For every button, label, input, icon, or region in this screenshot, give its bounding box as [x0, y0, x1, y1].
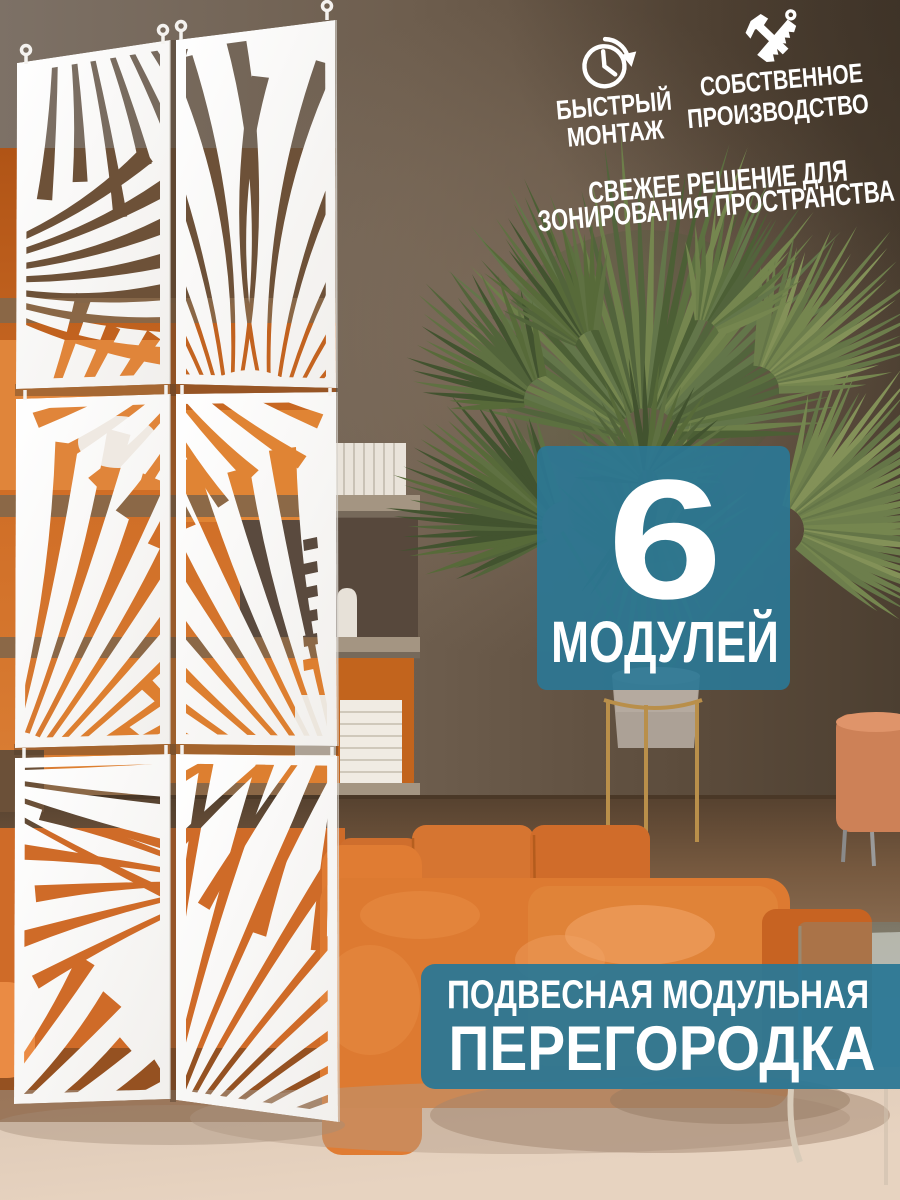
svg-text:ПОДВЕСНАЯ МОДУЛЬНАЯ: ПОДВЕСНАЯ МОДУЛЬНАЯ — [447, 973, 869, 1017]
svg-text:МОДУЛЕЙ: МОДУЛЕЙ — [551, 610, 779, 675]
svg-text:6: 6 — [608, 445, 723, 635]
svg-text:ПЕРЕГОРОДКА: ПЕРЕГОРОДКА — [449, 1014, 876, 1084]
